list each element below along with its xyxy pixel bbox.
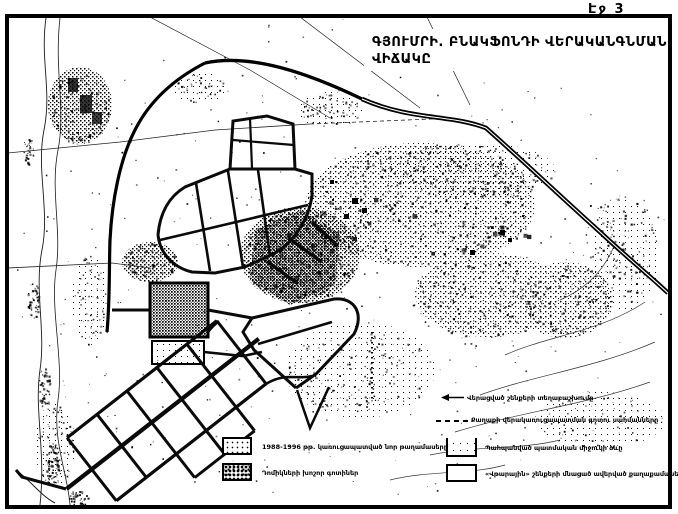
urban-fabric-stipple [35,67,665,487]
legend-label-rebuild-zone-boundary: Քաղաքի վերակառուցապատման գոտու սահմաններ… [471,416,658,424]
legend-label-domik-zones: Դոմիկների խոշոր գոտիներ [262,469,358,477]
map-canvas: ԳՅՈՒՄՐԻ. ԲՆԱԿՖՈՆԴԻ ՎԵՐԱԿԱՆԳՆՄԱՆ ՎԻՃԱԿԸ [0,0,678,514]
map-title-line2: ՎԻՃԱԿԸ [372,52,431,67]
legend-label-preserved-core: Պահպանված պատմական միջուկի ձևը [485,444,623,452]
scanned-map-page: Էջ 3 [0,0,678,514]
legend-left-arrow-icon [441,392,465,403]
legend-swatch-preserved-core [446,438,477,457]
map-title-line1: ԳՅՈՒՄՐԻ. ԲՆԱԿՖՈՆԴԻ ՎԵՐԱԿԱՆԳՆՄԱՆ [372,35,667,50]
legend-label-destroyed-quarters: «Վթարային» շենքերի մնացած ավերված քաղաքա… [485,470,678,478]
legend-dashed-line-symbol [436,420,469,422]
legend-label-new-districts: 1988-1996 թթ. կառուցապատված նոր թաղամասե… [262,443,448,451]
map-title-block: ԳՅՈՒՄՐԻ. ԲՆԱԿՖՈՆԴԻ ՎԵՐԱԿԱՆԳՆՄԱՆ ՎԻՃԱԿԸ [364,29,667,71]
legend-swatch-domik-zones [222,463,252,481]
legend-swatch-new-districts [222,437,252,455]
legend-label-removed-buildings: Վերացված շենքերի տեղաբաշխումը [467,394,593,402]
legend-swatch-destroyed-quarters [446,464,477,482]
